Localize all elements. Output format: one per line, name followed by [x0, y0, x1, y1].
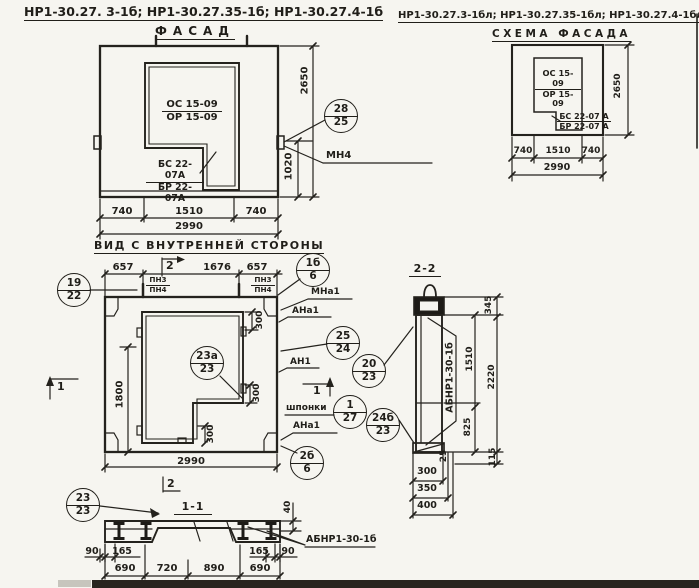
schema-dim-height: 2650	[613, 70, 623, 102]
section-1-1-title: 1-1	[174, 500, 212, 515]
sec22-dim-350: 350	[410, 483, 444, 494]
schema-dim-total: 2990	[536, 162, 578, 173]
sec22-dim-400: 400	[410, 500, 444, 511]
inner-dim-1676: 1676	[196, 262, 238, 273]
schema-dim-740-left: 740	[507, 146, 539, 156]
facade-sill-series: БС 22-07А БР 22-07А	[146, 160, 204, 205]
title-right: НР1-30.27.3-1бл; НР1-30.27.35-1бл; НР1-3…	[398, 10, 699, 23]
series-bs: БС 22-07 А	[557, 112, 611, 122]
sec11-dim-90-right: 90	[273, 546, 303, 557]
schema-sill-series: БС 22-07 А БР 22-07 А	[557, 112, 611, 132]
sec11-dim-90-left: 90	[77, 546, 107, 557]
callout-23-23: 23 23	[66, 488, 100, 522]
facade-label-mn4: МН4	[326, 150, 351, 161]
schema-title: СХЕМА ФАСАДА	[492, 28, 631, 42]
sec11-dim-720: 720	[147, 563, 187, 574]
facade-dim-740-right: 740	[236, 206, 276, 217]
inner-dim-657-right: 657	[238, 262, 276, 273]
sec22-dim-345: 345	[484, 290, 494, 320]
title-left: НР1-30.27. 3-1б; НР1-30.27.35-1б; НР1-30…	[24, 4, 383, 21]
series-os: ОС 15-09	[162, 99, 222, 112]
sec22-dim-1510: 1510	[465, 344, 475, 374]
facade-dim-1510: 1510	[169, 206, 209, 217]
callout-1-27: 1 27	[333, 395, 367, 429]
callout-bottom: 25	[325, 117, 357, 129]
pn4: ПН4	[146, 286, 170, 295]
sec22-dim-300: 300	[410, 466, 444, 477]
sec11-dim-165-right: 165	[244, 546, 274, 557]
facade-dim-total: 2990	[169, 221, 209, 232]
sec11-dim-690-a: 690	[105, 563, 145, 574]
inner-dim-total: 2990	[171, 456, 211, 467]
series-br: БР 22-07 А	[557, 122, 611, 131]
facade-dim-1020: 1020	[284, 150, 295, 184]
schema-dim-740-right: 740	[575, 146, 607, 156]
sec22-dim-825: 825	[463, 412, 473, 442]
sec11-dim-165-left: 165	[107, 546, 137, 557]
facade-dim-height: 2650	[300, 64, 311, 98]
facade-opening-series: ОС 15-09 ОР 15-09	[162, 99, 222, 124]
section-marker-1-left: 1	[57, 380, 65, 393]
section-marker-1-right: 1	[313, 384, 321, 397]
inner-dim-300-a: 300	[255, 305, 265, 335]
callout-23a-23: 23а 23	[190, 346, 224, 380]
section-2-2-title: 2-2	[409, 262, 441, 277]
series-or: ОР 15-09	[162, 112, 222, 124]
inner-dim-300-b: 300	[252, 378, 262, 408]
callout-1b-6: 1б 6	[296, 253, 330, 287]
label-ana1-top: АНа1	[292, 306, 319, 316]
schema-dim-1510: 1510	[541, 146, 575, 156]
schema-opening-series: ОС 15-09 ОР 15-09	[535, 69, 581, 109]
series-bs: БС 22-07А	[146, 160, 204, 183]
series-br: БР 22-07А	[146, 183, 204, 205]
section-marker-2-top: 2	[166, 259, 174, 272]
sec22-panel-mark: АБНР1-30-1б	[445, 334, 456, 422]
drawing-linework	[0, 0, 699, 588]
callout-28-25: 28 25	[324, 99, 358, 133]
pn-label-left: ПН3 ПН4	[146, 276, 170, 294]
facade-dim-740-left: 740	[102, 206, 142, 217]
sec11-dim-890: 890	[194, 563, 234, 574]
label-an1: АН1	[290, 357, 311, 367]
series-os: ОС 15-09	[535, 69, 581, 90]
callout-20-23: 20 23	[352, 354, 386, 388]
callout-top: 28	[325, 104, 357, 117]
callout-24b-23: 24б 23	[366, 408, 400, 442]
inner-dim-300-c: 300	[206, 419, 216, 449]
callout-2b-6: 2б 6	[290, 446, 324, 480]
series-or: ОР 15-09	[535, 90, 581, 110]
inner-dim-657-left: 657	[104, 262, 142, 273]
sec22-dim-2220: 2220	[487, 362, 497, 392]
callout-25-24: 25 24	[326, 326, 360, 360]
inner-dim-1800: 1800	[115, 376, 126, 414]
pn4: ПН4	[251, 286, 275, 295]
sec11-panel-mark: АБНР1-30-1б	[306, 534, 376, 545]
pn-label-right: ПН3 ПН4	[251, 276, 275, 294]
callout-19-22: 19 22	[57, 273, 91, 307]
sec11-dim-40: 40	[283, 491, 293, 523]
label-ana1-bottom: АНа1	[293, 421, 320, 431]
drawing-sheet: НР1-30.27. 3-1б; НР1-30.27.35-1б; НР1-30…	[0, 0, 699, 588]
inner-view-title: ВИД С ВНУТРЕННЕЙ СТОРОНЫ	[94, 239, 324, 254]
sec22-dim-115: 115	[488, 442, 498, 472]
section-marker-2-bottom: 2	[167, 477, 175, 490]
facade-title: ФАСАД	[155, 24, 235, 40]
label-shponki: шпонки	[286, 403, 327, 413]
sec11-dim-690-b: 690	[240, 563, 280, 574]
label-mna1: МНа1	[311, 287, 340, 297]
